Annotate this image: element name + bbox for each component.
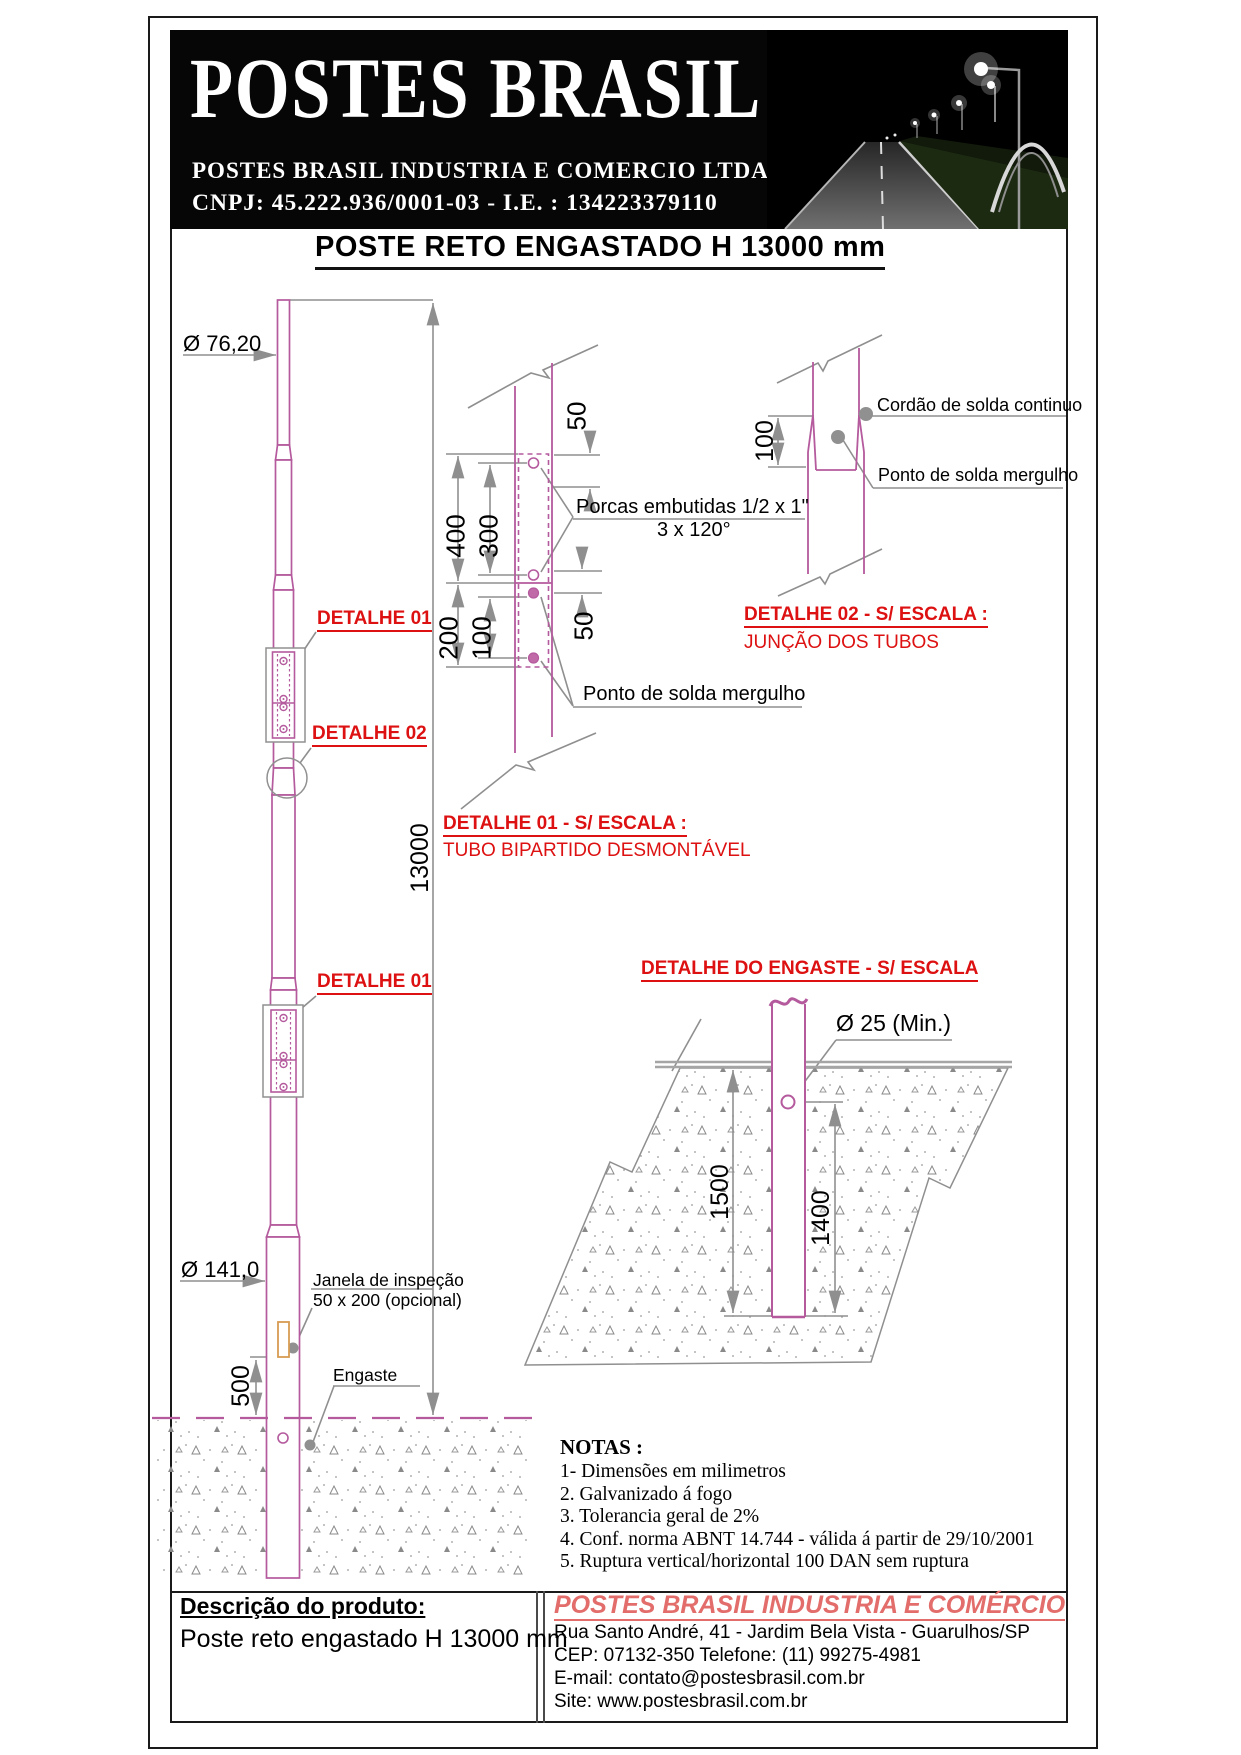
note-item-4: 4. Conf. norma ABNT 14.744 - válida á pa… <box>560 1530 1035 1550</box>
footer-cep-phone: CEP: 07132-350 Telefone: (11) 99275-4981 <box>554 1646 921 1666</box>
ground-hatch-left <box>155 1420 530 1578</box>
detail2-ponto-solda-label: Ponto de solda mergulho <box>878 466 1078 485</box>
footer-company-name: POSTES BRASIL INDUSTRIA E COMÉRCIO <box>554 1592 1065 1621</box>
note-item-2: 2. Galvanizado á fogo <box>560 1485 732 1505</box>
detail1-dim-50-top: 50 <box>563 402 590 431</box>
janela-label-line1: Janela de inspeção <box>313 1271 464 1289</box>
detail1-callout-label: DETALHE 01 <box>317 609 432 632</box>
product-description-value: Poste reto engastado H 13000 mm <box>180 1626 568 1652</box>
engaste-dim-1400: 1400 <box>808 1190 834 1246</box>
janela-label-line2: 50 x 200 (opcional) <box>313 1291 462 1309</box>
detail1-dim-400: 400 <box>442 514 469 557</box>
engaste-hole-circle <box>782 1096 795 1109</box>
footer-site: Site: www.postesbrasil.com.br <box>554 1692 807 1712</box>
weld-dot-plunge <box>831 430 845 444</box>
footer-vertical-divider <box>536 1591 545 1723</box>
detail2-callout-label: DETALHE 02 <box>312 724 427 747</box>
pole-outline <box>267 300 300 1578</box>
detail1-ponto-solda-label: Ponto de solda mergulho <box>583 684 805 705</box>
datasheet-page: { "header": { "logo": "POSTES BRASIL", "… <box>0 0 1241 1755</box>
detail1-subtitle: TUBO BIPARTIDO DESMONTÁVEL <box>443 841 751 861</box>
detail1-drawing <box>515 363 552 753</box>
pole-height-dimension: 13000 <box>407 823 433 893</box>
footer-email: E-mail: contato@postesbrasil.com.br <box>554 1669 865 1689</box>
detail1-dim-100: 100 <box>468 616 495 659</box>
detail2-drawing <box>808 348 873 574</box>
engaste-hole-diameter-label: Ø 25 (Min.) <box>836 1011 951 1035</box>
pole-bottom-diameter-label: Ø 141,0 <box>181 1258 259 1281</box>
engaste-leader-dot <box>305 1440 316 1451</box>
detail2-subtitle: JUNÇÃO DOS TUBOS <box>744 633 939 653</box>
engaste-detail-title: DETALHE DO ENGASTE - S/ ESCALA <box>641 959 978 982</box>
detail1-dim-200: 200 <box>435 616 462 659</box>
embed-depth-dimension: 500 <box>228 1365 254 1407</box>
detail2-title: DETALHE 02 - S/ ESCALA : <box>744 605 988 628</box>
product-description-heading: Descrição do produto: <box>180 1594 425 1618</box>
weld-dot-continuous <box>859 407 873 421</box>
detail1-title: DETALHE 01 - S/ ESCALA : <box>443 814 687 837</box>
detail2-dim-100: 100 <box>752 420 778 462</box>
engaste-concrete-block <box>525 1068 1008 1365</box>
inspection-window-rect <box>278 1322 289 1357</box>
notes-heading: NOTAS : <box>560 1436 643 1458</box>
detail1-dim-50-bottom: 50 <box>570 612 597 641</box>
footer-address: Rua Santo André, 41 - Jardim Bela Vista … <box>554 1623 1030 1643</box>
cordao-solda-label: Cordão de solda continuo <box>877 396 1082 415</box>
note-item-1: 1- Dimensões em milimetros <box>560 1462 786 1482</box>
detail1b-callout-label: DETALHE 01 <box>317 972 432 995</box>
engaste-dim-1500: 1500 <box>707 1164 733 1220</box>
pole-top-diameter-label: Ø 76,20 <box>183 332 261 355</box>
porcas-label-line2: 3 x 120° <box>657 520 731 541</box>
note-item-3: 3. Tolerancia geral de 2% <box>560 1507 759 1527</box>
note-item-5: 5. Ruptura vertical/horizontal 100 DAN s… <box>560 1552 969 1572</box>
engaste-ground-line <box>655 1062 1012 1067</box>
engaste-pole <box>770 999 807 1317</box>
porcas-label-line1: Porcas embutidas 1/2 x 1" <box>576 497 809 518</box>
detail1-dim-300: 300 <box>475 514 502 557</box>
engaste-label: Engaste <box>333 1366 397 1384</box>
